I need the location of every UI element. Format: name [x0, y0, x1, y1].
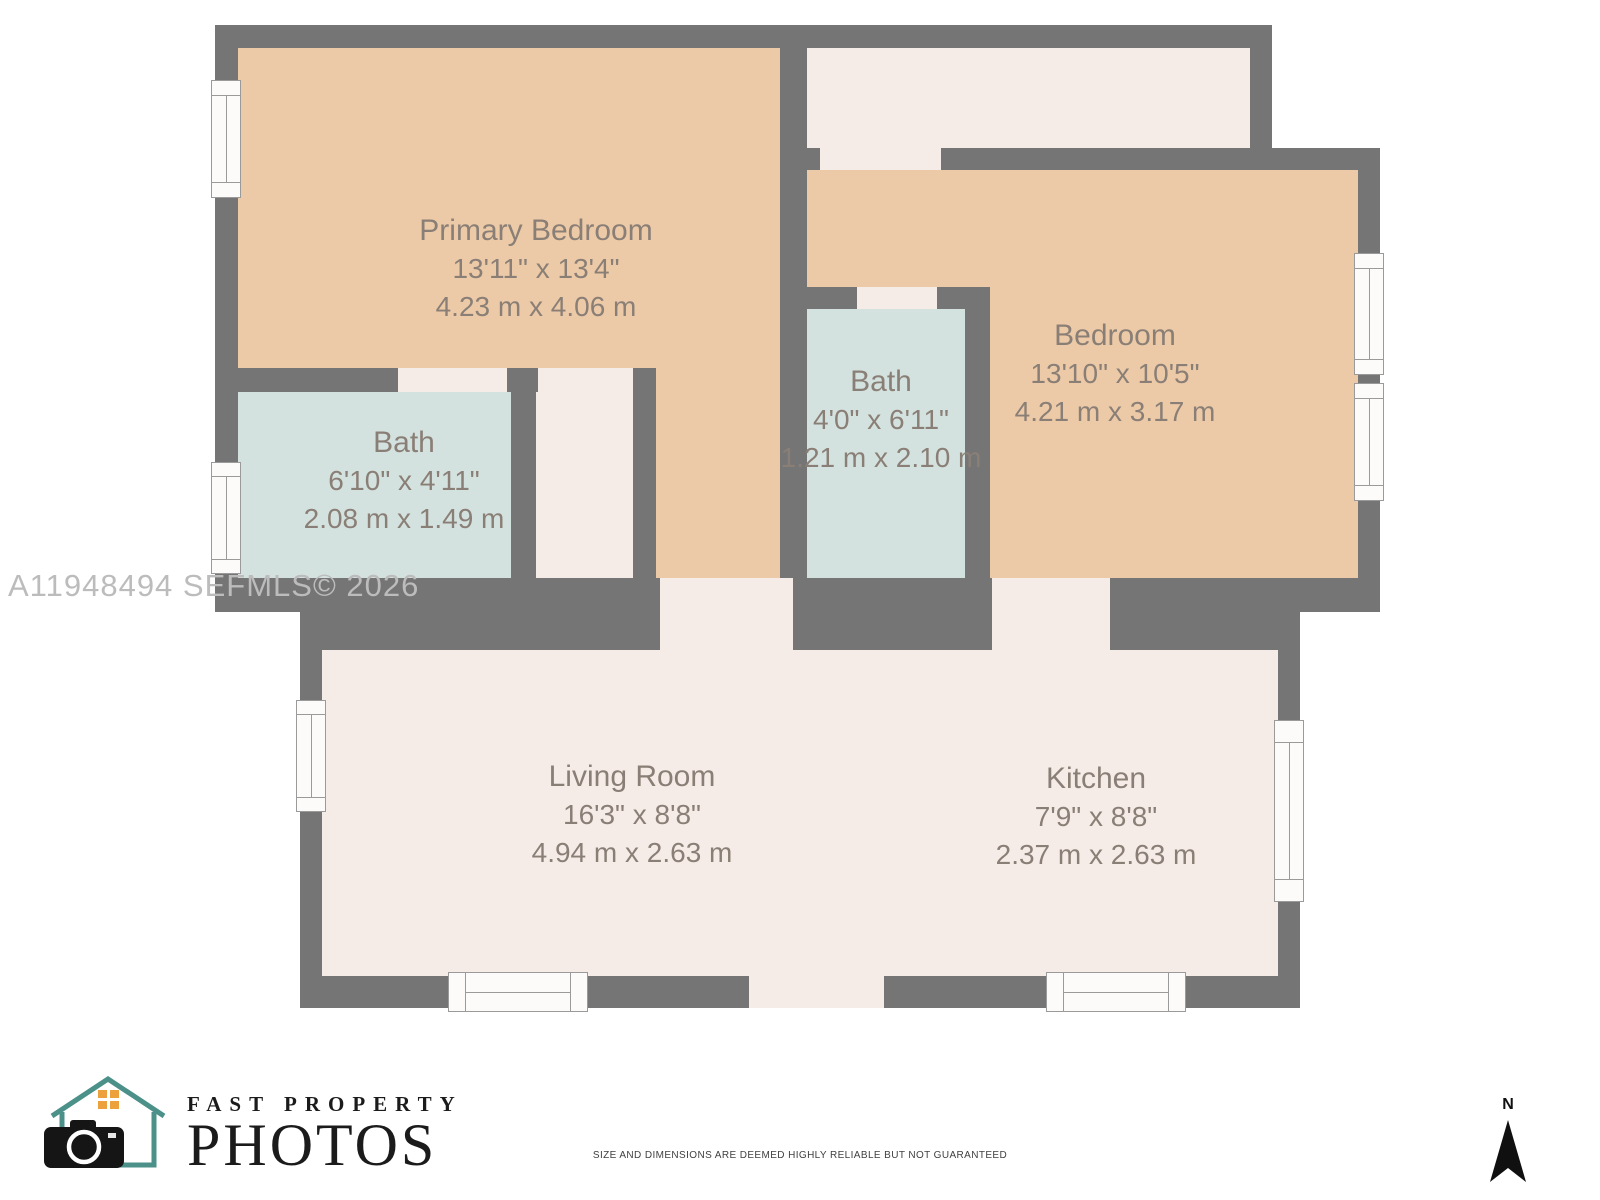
window-icon — [1046, 972, 1186, 1012]
window-icon — [211, 80, 241, 198]
wall — [300, 612, 1300, 650]
kitchen-label: Kitchen 7'9" x 8'8" 2.37 m x 2.63 m — [996, 760, 1197, 874]
mls-watermark: A11948494 SEFMLS© 2026 — [8, 568, 419, 604]
wall — [780, 48, 807, 578]
wall — [215, 25, 1272, 48]
door-opening — [749, 976, 884, 1008]
room-dim-metric: 4.94 m x 2.63 m — [532, 834, 733, 872]
room-name: Bedroom — [1015, 317, 1216, 355]
door-opening — [398, 368, 507, 392]
room-name: Kitchen — [996, 760, 1197, 798]
room-dim-metric: 1.21 m x 2.10 m — [781, 439, 982, 477]
closet-area — [536, 392, 633, 578]
primary-bedroom-label: Primary Bedroom 13'11" x 13'4" 4.23 m x … — [419, 212, 652, 326]
bedroom-label: Bedroom 13'10" x 10'5" 4.21 m x 3.17 m — [1015, 317, 1216, 431]
room-name: Bath — [304, 424, 505, 462]
disclaimer-text: SIZE AND DIMENSIONS ARE DEEMED HIGHLY RE… — [0, 1150, 1600, 1161]
room-dim-metric: 2.37 m x 2.63 m — [996, 836, 1197, 874]
room-dim-imperial: 4'0" x 6'11" — [781, 401, 982, 439]
room-dim-metric: 4.21 m x 3.17 m — [1015, 393, 1216, 431]
wall — [633, 392, 656, 578]
room-dim-imperial: 6'10" x 4'11" — [304, 462, 505, 500]
room-dim-metric: 2.08 m x 1.49 m — [304, 500, 505, 538]
door-opening — [820, 148, 941, 170]
window-icon — [1274, 720, 1304, 902]
wall — [511, 392, 536, 578]
bath-left-label: Bath 6'10" x 4'11" 2.08 m x 1.49 m — [304, 424, 505, 538]
wall — [1250, 25, 1272, 148]
window-icon — [1354, 253, 1384, 375]
door-opening — [538, 368, 633, 392]
room-dim-imperial: 16'3" x 8'8" — [532, 796, 733, 834]
north-compass: N — [1478, 1096, 1538, 1193]
logo-line2: PHOTOS — [187, 1117, 463, 1173]
room-dim-imperial: 7'9" x 8'8" — [996, 798, 1197, 836]
room-name: Bath — [781, 363, 982, 401]
door-opening — [992, 578, 1110, 650]
window-icon — [1354, 383, 1384, 501]
room-name: Living Room — [532, 758, 733, 796]
door-opening — [857, 287, 937, 309]
living-room-label: Living Room 16'3" x 8'8" 4.94 m x 2.63 m — [532, 758, 733, 872]
window-icon — [211, 462, 241, 574]
north-label: N — [1478, 1096, 1538, 1114]
bath-center-label: Bath 4'0" x 6'11" 1.21 m x 2.10 m — [781, 363, 982, 477]
room-dim-imperial: 13'11" x 13'4" — [419, 250, 652, 288]
floor-plan-page: Primary Bedroom 13'11" x 13'4" 4.23 m x … — [0, 0, 1600, 1200]
room-dim-imperial: 13'10" x 10'5" — [1015, 355, 1216, 393]
door-opening — [660, 578, 793, 650]
entry-hall-area — [807, 48, 1250, 148]
room-dim-metric: 4.23 m x 4.06 m — [419, 288, 652, 326]
window-icon — [448, 972, 588, 1012]
north-arrow-icon — [1485, 1175, 1531, 1192]
window-icon — [296, 700, 326, 812]
primary-bedroom-hall-area — [656, 368, 780, 578]
room-name: Primary Bedroom — [419, 212, 652, 250]
